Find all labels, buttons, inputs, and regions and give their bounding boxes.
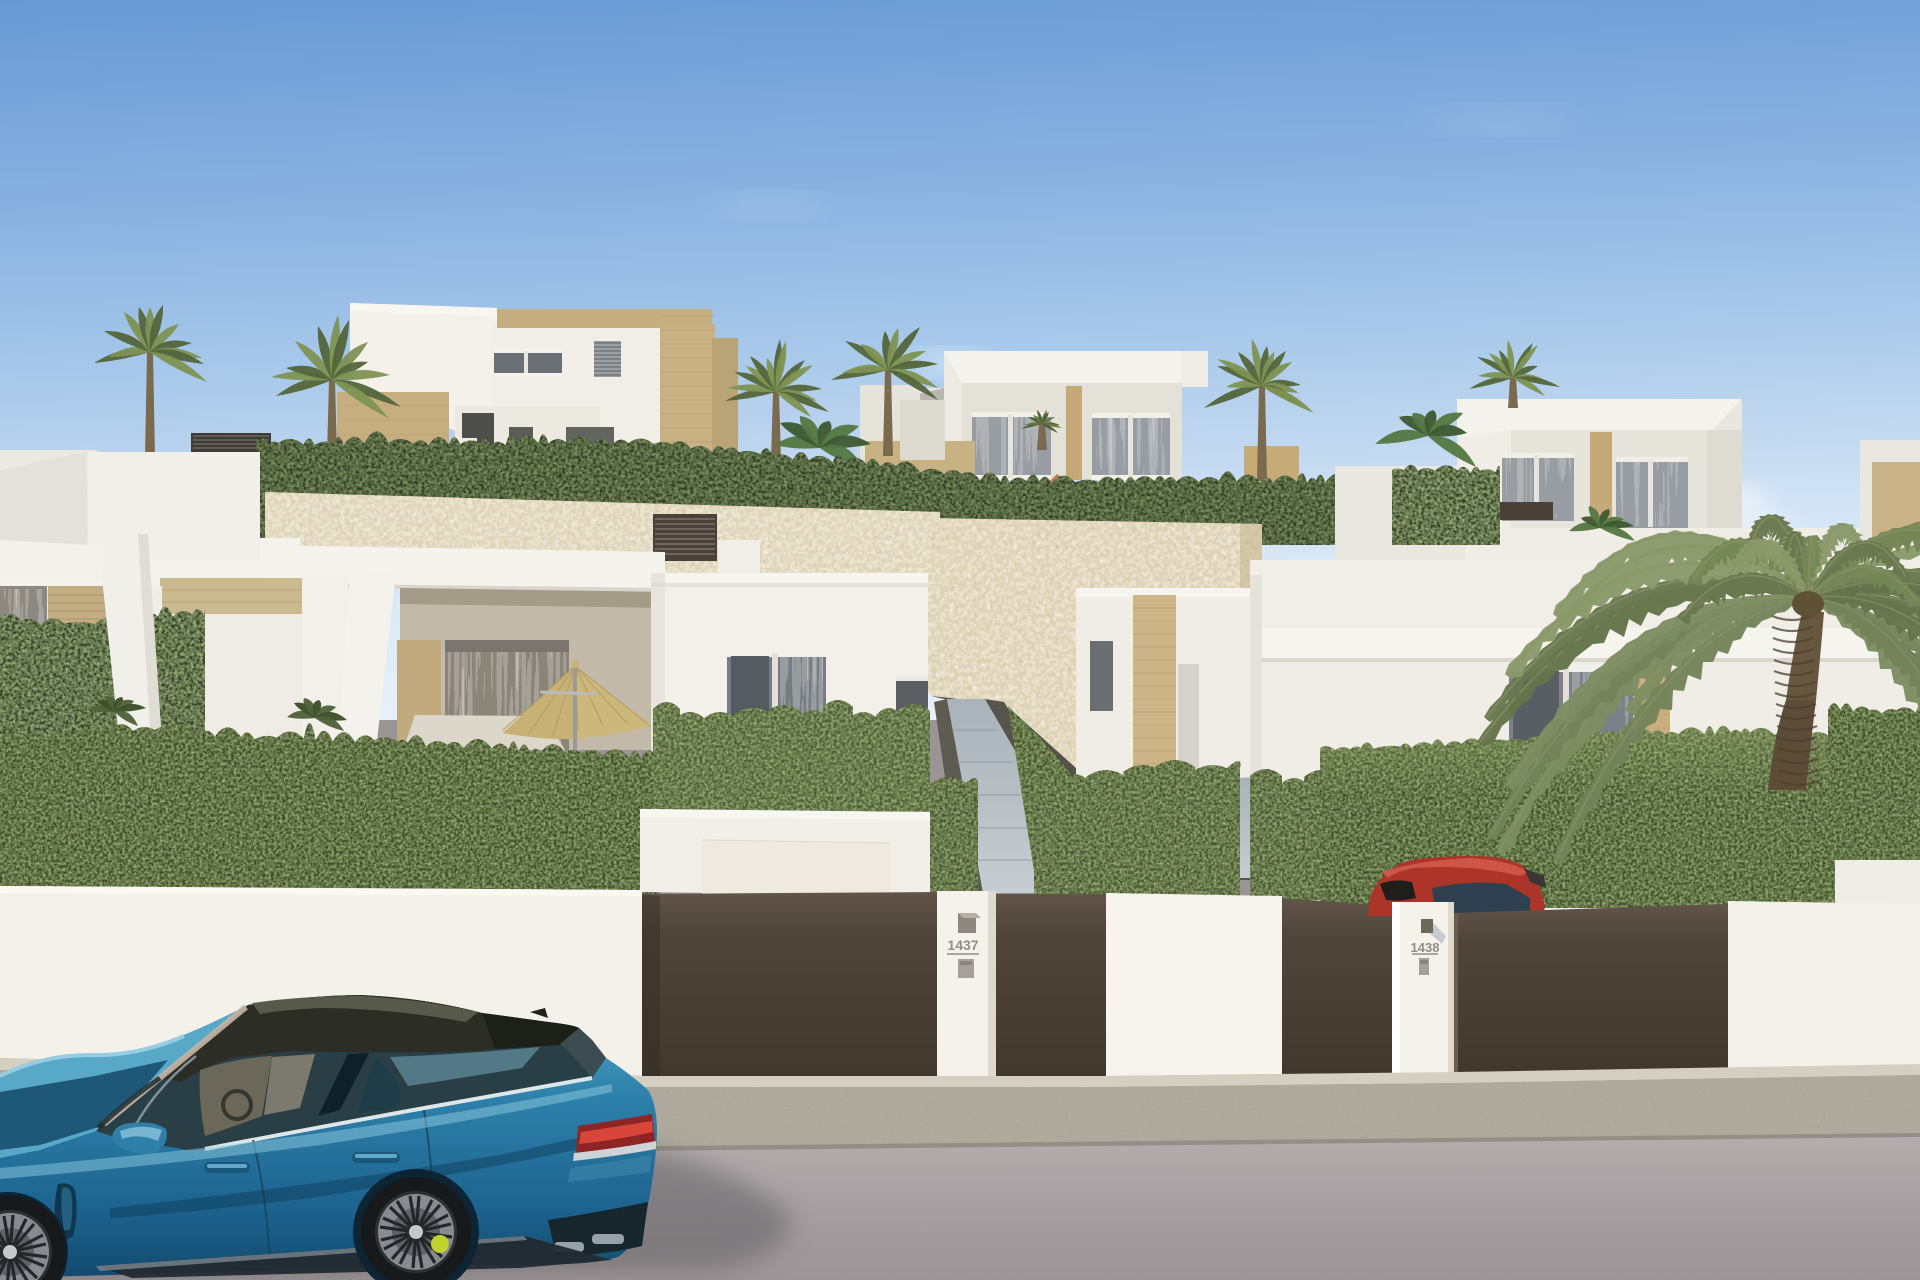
svg-text:1437: 1437 [947,937,978,953]
svg-text:1438: 1438 [1411,940,1440,955]
